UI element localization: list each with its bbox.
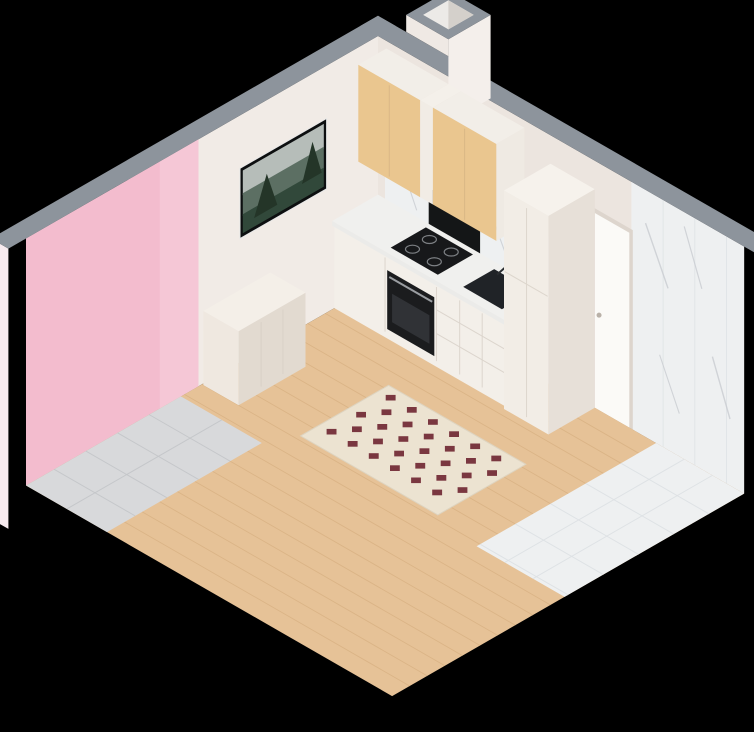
floorplan-canvas bbox=[0, 0, 754, 732]
tall-cabinet bbox=[504, 164, 595, 435]
apartment-isometric-render bbox=[0, 0, 754, 732]
apartment bbox=[0, 0, 754, 696]
entry-door bbox=[591, 206, 633, 429]
